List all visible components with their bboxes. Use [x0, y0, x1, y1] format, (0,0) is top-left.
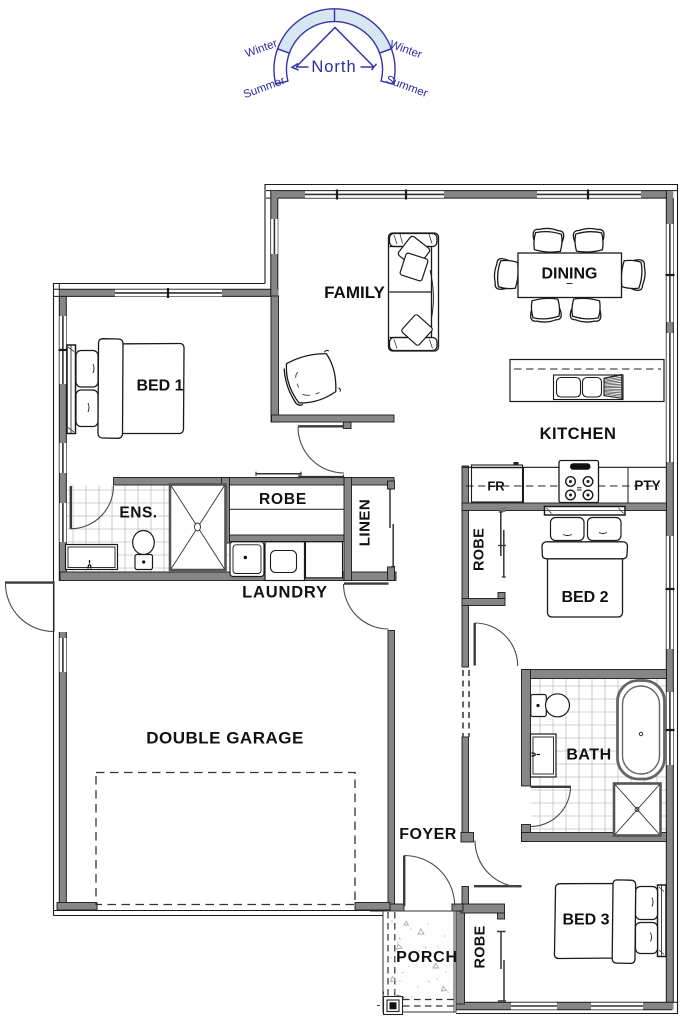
svg-text:FR: FR: [487, 479, 505, 494]
svg-text:FAMILY: FAMILY: [324, 283, 385, 302]
svg-text:BED 2: BED 2: [561, 589, 608, 606]
svg-text:North: North: [311, 58, 356, 76]
svg-text:DOUBLE GARAGE: DOUBLE GARAGE: [146, 729, 304, 748]
svg-text:KITCHEN: KITCHEN: [540, 425, 617, 443]
svg-text:ROBE: ROBE: [259, 491, 307, 508]
svg-text:ENS.: ENS.: [119, 505, 157, 522]
svg-text:PORCH: PORCH: [396, 949, 458, 966]
svg-text:BATH: BATH: [566, 747, 611, 764]
svg-text:BED 3: BED 3: [562, 912, 609, 929]
svg-text:ROBE: ROBE: [472, 528, 488, 571]
svg-text:ROBE: ROBE: [473, 925, 489, 968]
svg-text:BED 1: BED 1: [136, 378, 183, 395]
svg-text:DINING: DINING: [542, 266, 598, 283]
svg-text:LAUNDRY: LAUNDRY: [242, 584, 328, 602]
svg-text:LINEN: LINEN: [357, 499, 374, 547]
svg-text:PTY: PTY: [634, 478, 660, 493]
svg-text:FOYER: FOYER: [399, 826, 457, 843]
